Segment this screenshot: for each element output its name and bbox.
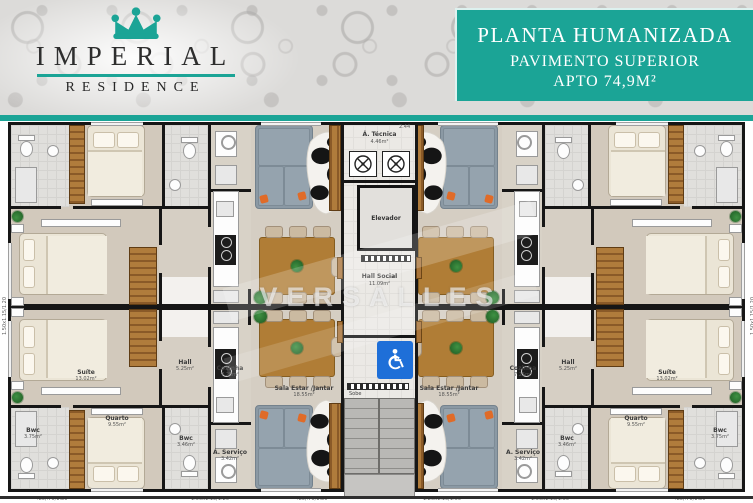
toilet [720,457,733,473]
dresser [41,219,121,227]
dining-table [418,319,494,377]
pillow [718,353,730,375]
tv-panel [329,125,341,211]
room-area: 11.09m² [341,281,418,287]
room-name: Cozinha [217,365,244,372]
cooktop [517,235,538,265]
window [438,122,498,126]
wall [591,273,594,307]
blanket [646,236,707,294]
toilet [183,455,196,471]
chair [265,310,283,322]
page: IMPERIAL RESIDENCE PLANTA HUMANIZADA PAV… [0,0,753,503]
toilet [183,143,196,159]
sink [694,457,706,469]
wall [73,206,211,209]
room-name: Á. Técnica [363,131,397,138]
window [8,321,12,377]
room-name: Á. Serviço [213,449,247,456]
chair [313,226,331,238]
kitchen-sink [216,201,234,217]
wall [162,408,165,489]
elevator-label: Elevador [371,215,401,222]
room-label-bwc2: Bwc 3.46m² [164,435,208,448]
plant [486,310,499,323]
sink [694,145,706,157]
laundry-tank [516,429,538,449]
table-plant [450,342,462,354]
quarto-bed [608,125,666,197]
shower [15,167,37,203]
room-label-hall-social: Hall Social 11.09m² [341,273,418,287]
wall [248,307,251,325]
tv-panel [329,403,341,489]
shelf [91,199,143,206]
burner [221,250,232,261]
sink [169,423,181,435]
chair [446,226,464,238]
room-area: 3.46m² [164,442,208,448]
window [91,488,143,492]
apartments-right: Suíte 13.02m² Hall 5.25m² Quarto 9.55m² … [412,125,742,489]
chair [265,226,283,238]
room-name: Sala Estar /Jantar [420,385,479,392]
chair [289,226,307,238]
room-label-servico: Á. Serviço 3.42m² [207,449,253,462]
chair [422,310,440,322]
room-label-sala: Sala Estar /Jantar 18.55m² [414,385,484,398]
wall [208,125,211,227]
footer-rule [0,496,753,499]
room-area: 9.55m² [73,422,161,428]
wall [588,408,591,489]
apartment-door [337,321,343,343]
nightstand [11,308,24,317]
window [261,122,321,126]
wall [159,369,162,407]
room-name: Á. Serviço [506,449,540,456]
room-label-hall: Hall 5.25m² [161,359,209,372]
brand-subtitle: RESIDENCE [28,80,243,96]
dining-table [418,237,494,295]
room-area: 13.02m² [41,376,131,382]
chair [313,310,331,322]
stair-landing [344,474,415,498]
room-name: Bwc [560,435,574,442]
wall [208,267,211,307]
wall [692,405,742,408]
room-label-hall: Hall 5.25m² [544,359,592,372]
plant [730,211,741,222]
pillow [23,326,35,348]
chair [446,310,464,322]
window [741,243,745,299]
fridge [514,290,540,303]
room-area: 18.55m² [269,392,339,398]
toilet-tank [18,473,35,479]
room-area: 3.46m² [545,442,589,448]
wall [591,207,594,245]
floor-plan: Suíte 13.02m² Hall 5.25m² Quarto 9.55m² … [8,122,745,492]
window [616,488,668,492]
dresser [632,387,712,395]
condenser-unit [349,151,377,177]
room-area: 7.25m² [500,372,546,378]
wall [162,125,165,206]
wall [341,180,418,183]
fridge [213,311,239,324]
room-floor-hall [159,207,211,277]
plant [12,211,23,222]
room-area: 18.55m² [414,392,484,398]
toilet-tank [718,473,735,479]
nightstand [729,381,742,390]
toilet-tank [181,471,198,477]
room-area: 3.75m² [13,434,53,440]
cooktop [215,235,236,265]
blanket [46,236,107,294]
table-plant [291,342,303,354]
wardrobe [129,309,157,367]
dimension-top: 2.44 [399,124,410,130]
shelf [610,408,662,415]
room-label-bwc2: Bwc 3.46m² [545,435,589,448]
pillow [718,266,730,288]
apartment-upper-right [412,125,742,307]
window [261,488,321,492]
toilet-tank [718,135,735,141]
apartment-lower-right: Suíte 13.02m² Hall 5.25m² Quarto 9.55m² … [412,307,742,489]
stair-threshold-hatch [347,383,409,390]
room-name: Hall Social [362,273,397,280]
quarto-bed [87,125,145,197]
laundry-tank [516,165,538,185]
suite-bed [646,233,734,295]
plant [12,392,23,403]
sink [572,423,584,435]
chair [265,292,283,304]
nightstand [11,297,24,306]
room-area: 5.25m² [161,366,209,372]
wall [208,387,211,489]
wheelchair-icon [382,347,408,373]
plan-subtitle-area: APTO 74,9M² [457,73,753,91]
title-box: PLANTA HUMANIZADA PAVIMENTO SUPERIOR APT… [455,8,753,101]
toilet-tank [555,137,572,143]
elevator-shaft: Elevador [357,185,415,251]
pillow [638,466,660,482]
wardrobe [69,125,85,204]
dining-table [259,237,335,295]
kitchen-sink [519,397,537,413]
blanket [88,150,142,196]
room-name: Cozinha [510,365,537,372]
washer-door [221,135,236,150]
wardrobe [596,309,624,367]
room-label-cozinha: Cozinha 7.25m² [207,365,253,378]
stair-rail [378,398,380,474]
apartment-upper-left: Suíte 13.02m² Hall 5.25m² Quarto 9.55m² … [11,125,341,307]
chair [470,226,488,238]
wall [341,335,418,338]
toilet [720,141,733,157]
pillow [718,326,730,348]
wall [159,307,162,341]
room-name: Quarto [105,415,128,422]
nightstand [11,224,24,233]
washer-door [221,464,236,479]
apartment-door [416,321,422,343]
wall [502,289,505,307]
wall [542,206,680,209]
nightstand [11,381,24,390]
plant [254,310,267,323]
room-area: 13.02m² [622,376,712,382]
wall [591,307,594,341]
shelf [91,408,143,415]
pillow [23,266,35,288]
pillow [93,466,115,482]
central-core: Á. Técnica 4.46m² Elevador [341,125,418,489]
sink [47,457,59,469]
plant [730,392,741,403]
toilet [20,457,33,473]
laundry-tank [215,165,237,185]
kitchen-sink [519,201,537,217]
plant [254,291,267,304]
dresser [632,219,712,227]
sink [572,179,584,191]
room-label-bwc1: Bwc 3.75m² [700,427,740,440]
kitchen-sink [216,397,234,413]
wardrobe [596,247,624,305]
teal-divider [0,115,753,121]
wall [588,125,591,206]
toilet [20,141,33,157]
apartment-lower-left: Suíte 13.02m² Hall 5.25m² Quarto 9.55m² … [11,307,341,489]
wall [542,307,545,347]
washer [215,131,237,157]
dining-table [259,319,335,377]
sofa-cushion [443,448,495,486]
window [741,321,745,377]
room-area: 3.42m² [500,456,546,462]
nightstand [729,224,742,233]
pillow [23,239,35,261]
wall [591,369,594,407]
wall [542,125,545,227]
room-label-cozinha: Cozinha 7.25m² [500,365,546,378]
pillow [117,466,139,482]
pillow [614,466,636,482]
wall [11,405,61,408]
apartment-door [337,257,343,279]
accessibility-sign [377,341,413,379]
apartment-door [416,257,422,279]
dimension-left: 1.50x1.15/1.20 [2,297,8,335]
fridge [213,290,239,303]
wall [692,206,742,209]
apartments-left: Suíte 13.02m² Hall 5.25m² Quarto 9.55m² … [11,125,341,489]
room-name: Sala Estar /Jantar [275,385,334,392]
brand-name: IMPERIAL [28,41,243,72]
room-floor-hall [542,207,594,277]
room-name: Hall [178,359,191,366]
room-name: Suíte [658,369,676,376]
pillow [23,353,35,375]
room-area: 3.42m² [207,456,253,462]
brand-logo: IMPERIAL RESIDENCE [28,6,243,112]
burner [221,353,232,364]
burner [221,237,232,248]
chair [289,292,307,304]
condenser-unit [382,151,410,177]
chair [422,226,440,238]
brand-rule [37,74,235,77]
room-area: 9.55m² [592,422,680,428]
room-label-quarto: Quarto 9.55m² [73,415,161,428]
chair [422,292,440,304]
chair [289,310,307,322]
shower [716,167,738,203]
wall [159,273,162,307]
plant [486,291,499,304]
blanket [611,150,665,196]
dresser [41,387,121,395]
toilet-tank [555,471,572,477]
toilet [557,143,570,159]
fan-icon [386,154,406,174]
toilet-tank [181,137,198,143]
plan-title: PLANTA HUMANIZADA [457,23,753,48]
window [438,488,498,492]
room-name: Suíte [77,369,95,376]
suite-bed [19,233,107,295]
wall [208,307,211,347]
room-label-suite: Suíte 13.02m² [622,369,712,382]
burner [521,237,532,248]
burner [521,250,532,261]
chair [446,292,464,304]
wardrobe [129,247,157,305]
room-label-sala: Sala Estar /Jantar 18.55m² [269,385,339,398]
burner [521,353,532,364]
wall [542,267,545,307]
elevator-door-hatch [361,255,411,262]
washer-door [517,135,532,150]
room-name: Bwc [26,427,40,434]
sink [47,145,59,157]
wall [248,289,251,307]
laundry-tank [215,429,237,449]
pillow [638,132,660,148]
crown-icon [107,6,165,40]
toilet [557,455,570,471]
stairs-label: Sobe [349,391,361,397]
room-area: 5.25m² [544,366,592,372]
toilet-tank [18,135,35,141]
sink [169,179,181,191]
room-area: 3.75m² [700,434,740,440]
fan-icon [353,154,373,174]
washer [516,131,538,157]
room-area: 7.25m² [207,372,253,378]
room-name: Hall [561,359,574,366]
wall [159,207,162,245]
wall [502,307,505,325]
room-name: Bwc [713,427,727,434]
chair [313,292,331,304]
window [8,243,12,299]
nightstand [729,308,742,317]
room-label-tecnica: Á. Técnica 4.46m² [341,131,418,145]
shelf [610,199,662,206]
table-plant [291,260,303,272]
window [91,122,143,126]
room-name: Bwc [179,435,193,442]
wardrobe [668,125,684,204]
room-label-quarto: Quarto 9.55m² [592,415,680,428]
fridge [514,311,540,324]
pillow [614,132,636,148]
room-label-bwc1: Bwc 3.75m² [13,427,53,440]
window [616,122,668,126]
pillow [117,132,139,148]
pillow [93,132,115,148]
room-name: Quarto [624,415,647,422]
plan-subtitle-floor: PAVIMENTO SUPERIOR [457,53,753,71]
sofa-cushion [443,128,495,166]
washer-door [517,464,532,479]
pillow [718,239,730,261]
table-plant [450,260,462,272]
room-area: 4.46m² [341,139,418,145]
wall [11,206,61,209]
room-label-suite: Suíte 13.02m² [41,369,131,382]
room-label-servico: Á. Serviço 3.42m² [500,449,546,462]
